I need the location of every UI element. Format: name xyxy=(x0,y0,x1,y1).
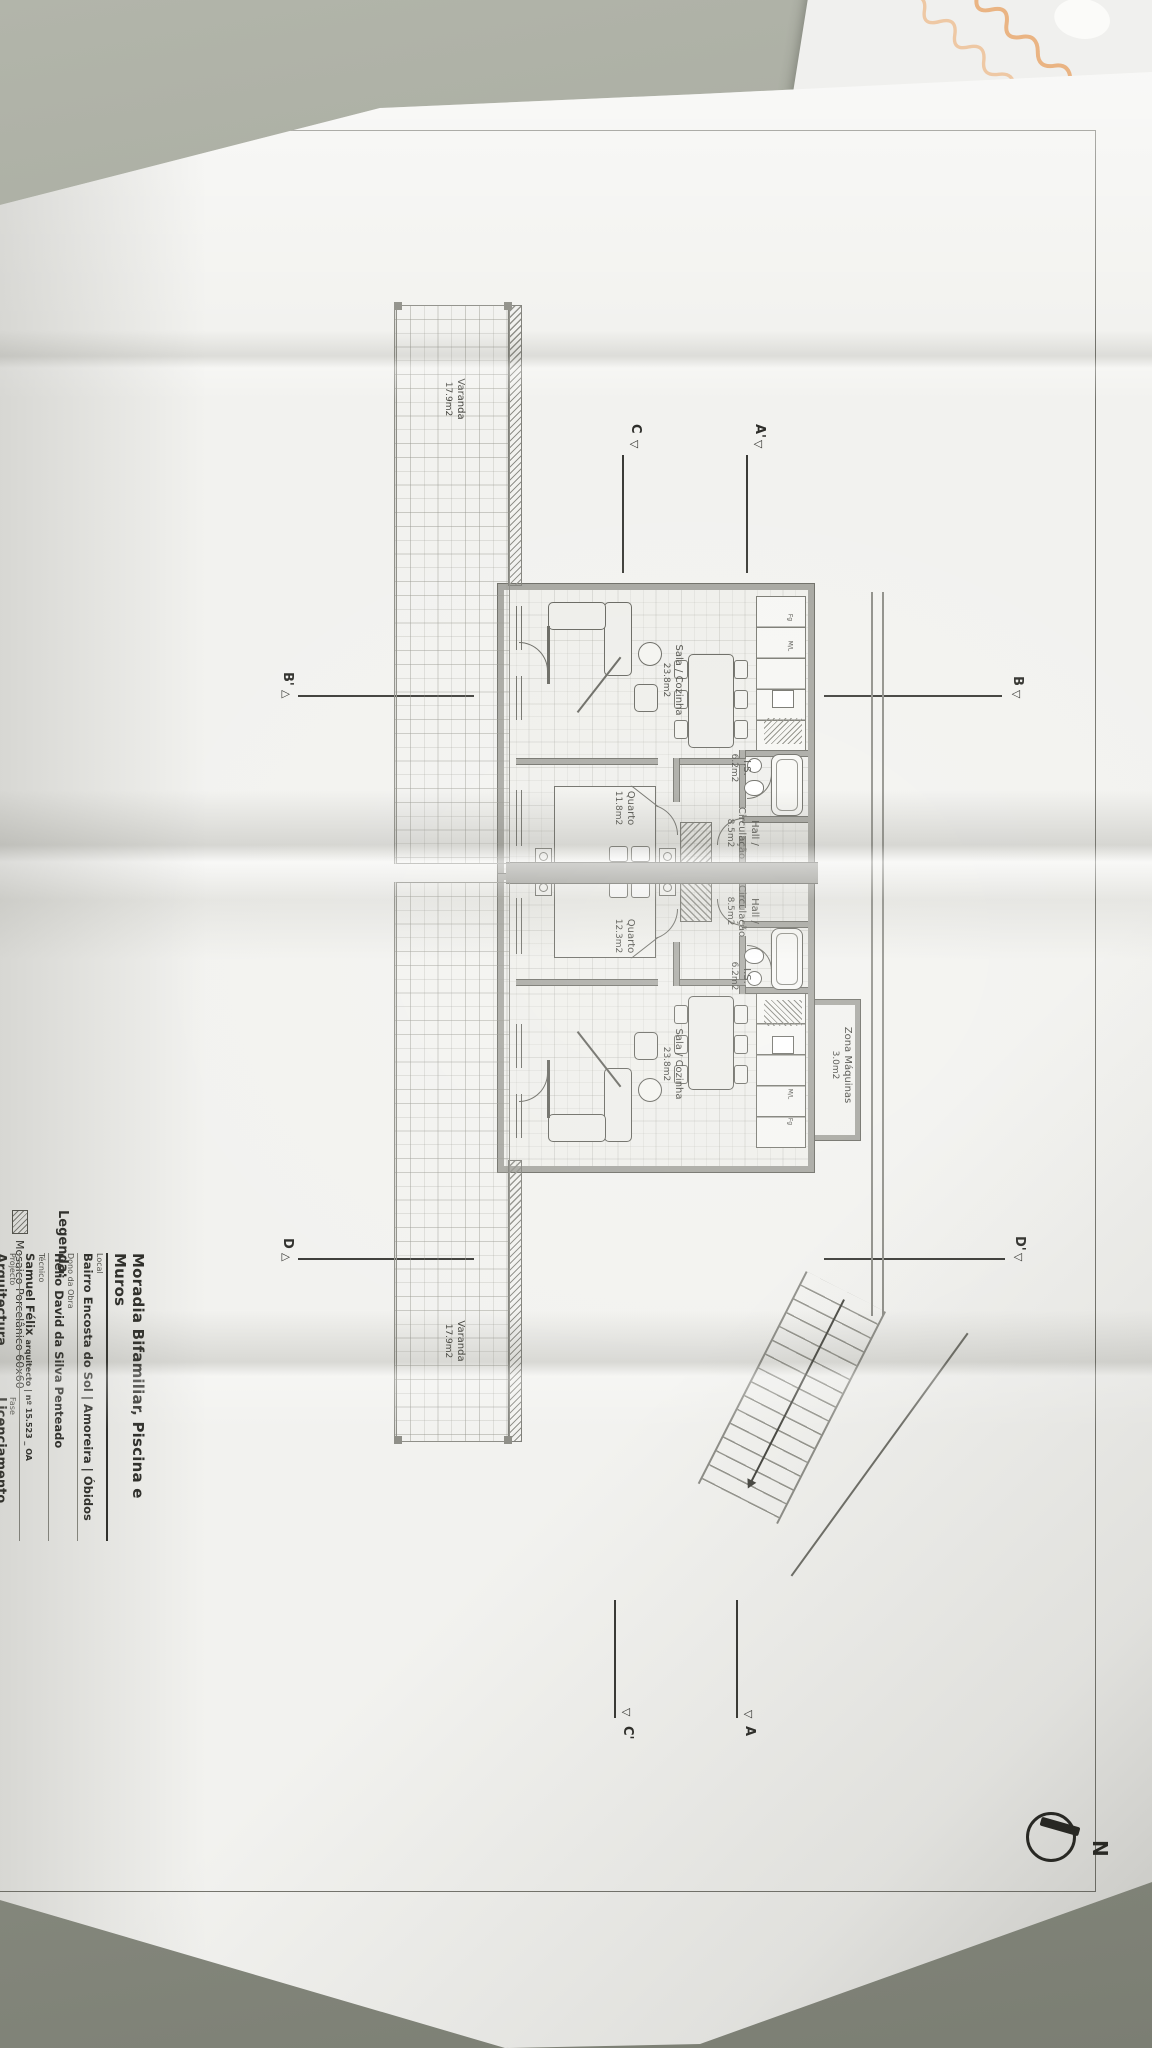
window-icon xyxy=(516,676,522,720)
sofa-icon xyxy=(548,1114,606,1142)
armchair-icon xyxy=(634,1032,658,1060)
varanda-door-arc xyxy=(519,1073,548,1102)
section-triangle-icon: ▽ xyxy=(753,440,764,448)
party-wall xyxy=(506,862,818,884)
chair-icon xyxy=(734,690,748,709)
partition-wall xyxy=(673,942,680,986)
room-label-hall-b: Hall / Circulação 8.5m2 xyxy=(724,874,760,948)
titleblock-fase: Fase Licenciamento xyxy=(0,1397,17,1541)
sheet-title: Moradia Bifamiliar, Piscina e Muros xyxy=(106,1253,147,1541)
dining-table-icon xyxy=(688,996,734,1090)
kitchen-label-fridge-b: Fg xyxy=(787,1118,793,1125)
tv-bench-icon xyxy=(547,1060,550,1118)
section-marker-b: B xyxy=(1011,676,1024,686)
varanda-door-arc xyxy=(519,642,548,671)
sofa-icon xyxy=(604,1068,632,1142)
section-line-c-right xyxy=(614,1600,616,1718)
drawing-canvas: N A' ▽ A ▽ C ▽ C' ▽ B ▽ B' △ D' ▽ D △ xyxy=(0,0,1152,2048)
chair-icon xyxy=(734,720,748,739)
coffee-table-icon xyxy=(638,642,662,666)
varanda-post xyxy=(394,302,402,310)
envelope-notch xyxy=(1051,0,1113,43)
section-triangle-icon: △ xyxy=(281,1253,292,1261)
section-marker-c-prime: C' xyxy=(621,1726,634,1740)
coffee-table-icon xyxy=(638,1078,662,1102)
unit-a xyxy=(498,584,814,882)
hall-closet-hatch xyxy=(680,878,712,922)
room-label-is-a: I.S. 6.2m2 xyxy=(728,742,752,794)
window-icon xyxy=(516,790,522,846)
legend-hatch-swatch xyxy=(12,1210,28,1234)
section-line-d-top xyxy=(824,1258,1005,1260)
photo-of-floor-plan: N A' ▽ A ▽ C ▽ C' ▽ B ▽ B' △ D' ▽ D △ xyxy=(0,0,1152,2048)
sink-icon xyxy=(772,690,794,708)
kitchen-label-washer-b: M/L xyxy=(787,1089,793,1099)
room-label-is-b: I.S. 6.2m2 xyxy=(728,950,752,1002)
varanda-post xyxy=(394,1436,402,1444)
section-marker-a: A xyxy=(743,1726,756,1736)
bathtub-icon xyxy=(771,928,803,990)
unit-b xyxy=(498,874,814,1172)
lamp-icon xyxy=(539,883,548,892)
room-label-sala-cozinha-a: Sala / Cozinha 23.8m2 xyxy=(660,628,684,732)
kitchen-label-washer-a: M/L xyxy=(787,641,793,651)
partition-wall xyxy=(673,758,680,802)
armchair-icon xyxy=(634,684,658,712)
lamp-icon xyxy=(663,852,672,861)
chair-icon xyxy=(734,1005,748,1024)
chair-icon xyxy=(734,1065,748,1084)
section-triangle-icon: ▽ xyxy=(1013,1253,1024,1261)
window-icon xyxy=(516,898,522,954)
room-label-sala-cozinha-b: Sala / Cozinha 23.8m2 xyxy=(660,1012,684,1116)
section-marker-d-prime: D' xyxy=(1013,1236,1026,1251)
room-label-quarto-a: Quarto 11.8m2 xyxy=(612,768,636,848)
bedroom-wall xyxy=(516,758,658,765)
dining-table-icon xyxy=(688,654,734,748)
section-marker-c: C xyxy=(629,424,642,434)
sofa-icon xyxy=(548,602,606,630)
room-label-zona-maquinas: Zona Máquinas 3.0m2 xyxy=(829,1008,853,1122)
varanda-back-wall-hatch xyxy=(508,305,522,586)
lamp-icon xyxy=(539,852,548,861)
titleblock-row-projecto-fase: Projecto Arquitectura Fase Licenciamento xyxy=(0,1253,19,1541)
chair-icon xyxy=(734,660,748,679)
bedroom-wall xyxy=(516,979,658,986)
section-line-c-left xyxy=(622,455,624,573)
section-triangle-icon: △ xyxy=(281,690,292,698)
titleblock-projecto: Projecto Arquitectura xyxy=(0,1253,17,1397)
titleblock-row-tecnico: Técnico Samuel Félix arquitecto | nº 15.… xyxy=(19,1253,48,1541)
tv-bench-icon xyxy=(547,626,550,684)
room-label-hall-a: Hall / Circulação 8.5m2 xyxy=(724,796,760,870)
site-boundary-wall xyxy=(871,592,884,1316)
titleblock-row-local: Local Bairro Encosta do Sol | Amoreira |… xyxy=(77,1253,106,1541)
sofa-icon xyxy=(604,602,632,676)
sink-icon xyxy=(772,1036,794,1054)
title-block: Moradia Bifamiliar, Piscina e Muros Loca… xyxy=(0,1253,147,1541)
section-line-b-top xyxy=(824,695,1002,697)
section-triangle-icon: ▽ xyxy=(621,1708,632,1716)
section-marker-a-prime: A' xyxy=(753,424,766,438)
north-label: N xyxy=(1088,1840,1112,1857)
pillow-icon xyxy=(631,846,650,862)
tv-diagonal-line xyxy=(577,657,621,713)
section-line-a-left xyxy=(746,455,748,573)
plan-sheet: N A' ▽ A ▽ C ▽ C' ▽ B ▽ B' △ D' ▽ D △ xyxy=(0,0,1152,2048)
stove-icon xyxy=(764,718,802,744)
section-triangle-icon: ▽ xyxy=(743,1710,754,1718)
varanda-post xyxy=(504,1436,512,1444)
section-line-a-right xyxy=(736,1600,738,1718)
lamp-icon xyxy=(663,883,672,892)
titleblock-row-dono: Dono da Obra Hélio David da Silva Pentea… xyxy=(48,1253,77,1541)
varanda-post xyxy=(504,302,512,310)
pillow-icon xyxy=(609,846,628,862)
room-label-varanda-b: Varanda 17.9m2 xyxy=(442,1300,466,1382)
chair-icon xyxy=(734,1035,748,1054)
stove-icon xyxy=(764,1000,802,1026)
tv-diagonal-line xyxy=(577,1031,621,1087)
hall-closet-hatch xyxy=(680,822,712,866)
section-marker-d: D xyxy=(281,1238,294,1249)
window-icon xyxy=(516,1024,522,1068)
room-label-varanda-a: Varanda 17.9m2 xyxy=(442,358,466,440)
kitchen-label-fridge-a: Fg xyxy=(787,614,793,621)
room-label-quarto-b: Quarto 12.3m2 xyxy=(612,896,636,976)
bathtub-icon xyxy=(771,754,803,816)
section-triangle-icon: ▽ xyxy=(629,440,640,448)
section-triangle-icon: ▽ xyxy=(1011,690,1022,698)
varanda-back-wall-hatch xyxy=(508,1160,522,1442)
section-marker-b-prime: B' xyxy=(281,672,294,686)
